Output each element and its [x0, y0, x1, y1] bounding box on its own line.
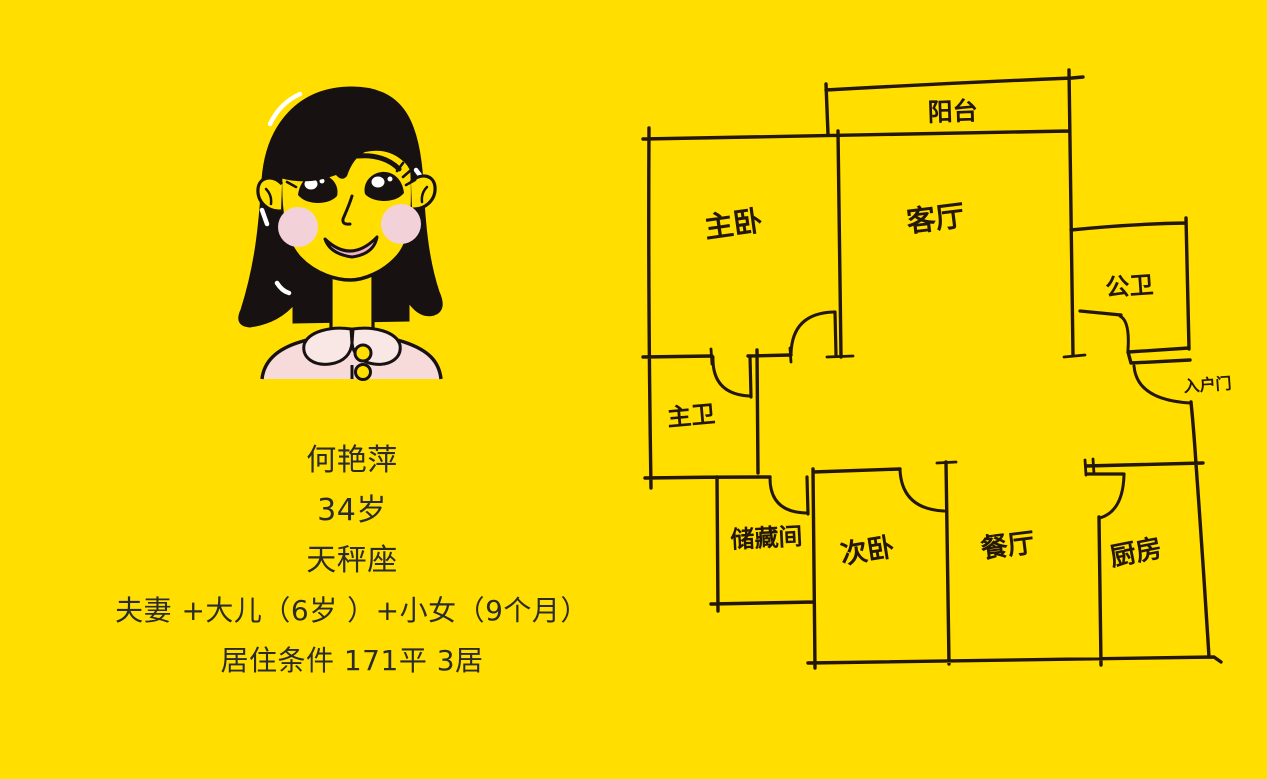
floorplan-door-leaves: [750, 311, 1124, 514]
room-label-master-bedroom: 主卧: [702, 203, 764, 245]
poster-canvas: 阳台 主卧 客厅 公卫 入户门 主卫 储藏间 次卧 餐厅 厨房 何艳萍 34岁 …: [0, 0, 1267, 779]
profile-name: 何艳萍: [28, 436, 676, 486]
profile-text-block: 何艳萍 34岁 天秤座 夫妻 +大儿（6岁 ）+小女（9个月） 居住条件 171…: [28, 436, 676, 686]
profile-age: 34岁: [28, 486, 676, 536]
room-label-balcony: 阳台: [927, 96, 978, 127]
floor-plan: [643, 70, 1221, 668]
room-label-dining-room: 餐厅: [979, 528, 1036, 565]
profile-zodiac: 天秤座: [28, 536, 676, 586]
avatar: [240, 88, 441, 380]
floor-plan-labels: 阳台 主卧 客厅 公卫 入户门 主卫 储藏间 次卧 餐厅 厨房: [666, 96, 1232, 573]
room-label-entry-door: 入户门: [1183, 374, 1232, 396]
profile-living-condition: 居住条件 171平 3居: [28, 636, 676, 686]
avatar-button-top: [355, 345, 371, 361]
floorplan-wall-ticks: [711, 348, 1094, 475]
room-label-living-room: 客厅: [905, 198, 967, 239]
profile-family: 夫妻 +大儿（6岁 ）+小女（9个月）: [28, 586, 676, 636]
avatar-cheek-right: [381, 204, 421, 244]
room-label-master-bathroom: 主卫: [666, 400, 716, 432]
avatar-collar-left: [304, 328, 352, 364]
avatar-cheek-left: [278, 207, 318, 247]
avatar-button-bottom: [356, 365, 371, 380]
room-label-guest-bathroom: 公卫: [1104, 271, 1154, 302]
room-label-kitchen: 厨房: [1108, 533, 1165, 572]
room-label-second-bedroom: 次卧: [838, 532, 896, 571]
room-label-storage-room: 储藏间: [730, 522, 803, 554]
floorplan-door-arcs: [713, 312, 1190, 518]
